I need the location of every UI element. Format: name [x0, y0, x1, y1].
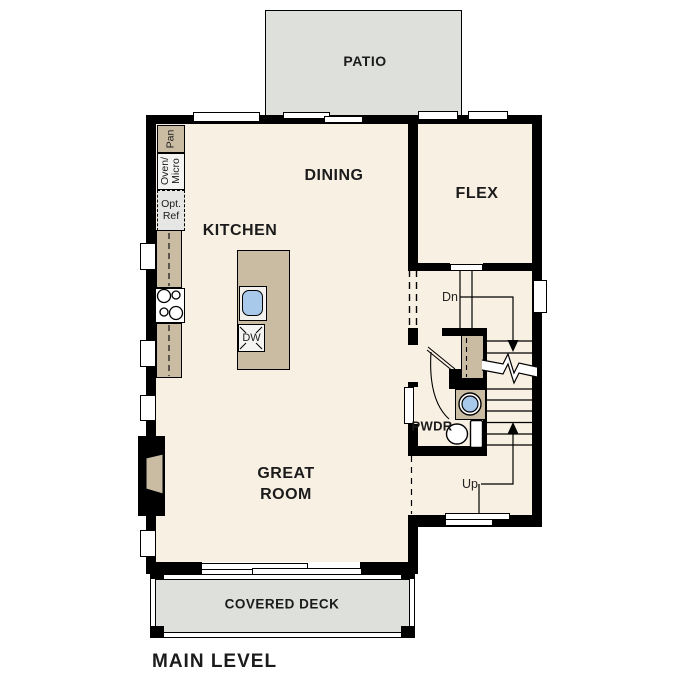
covered-deck-label: COVERED DECK — [225, 597, 340, 612]
pantry-label: Pan — [166, 130, 177, 149]
deck-post-tl — [150, 567, 164, 579]
wall-powder-bottom — [408, 446, 486, 456]
fireplace — [138, 436, 165, 516]
patio-door-panel-1 — [283, 112, 330, 119]
wall-right — [532, 115, 542, 527]
flex-label: FLEX — [456, 185, 499, 203]
window-right — [533, 280, 547, 313]
opt-ref-label: Opt. Ref — [161, 198, 181, 222]
island-sink — [242, 290, 263, 316]
dishwasher-label: DW — [242, 332, 260, 344]
powder-label: PWDR — [412, 419, 453, 434]
dining-label: DINING — [305, 167, 364, 185]
opt-ref-label-line2: Ref — [161, 210, 181, 222]
wall-flex-bottom-right — [483, 263, 542, 271]
window-left-3 — [140, 395, 156, 421]
oven-micro-label-line2: Micro — [171, 157, 182, 185]
window-left-2 — [140, 340, 156, 367]
wall-closet-top — [442, 328, 486, 336]
deck-post-tr — [401, 567, 415, 579]
powder-vanity — [455, 389, 486, 420]
patio-door-panel-2 — [324, 116, 363, 123]
deck-post-br — [401, 626, 415, 638]
great-room-label-line1: GREAT — [257, 463, 314, 484]
window-stair-bottom-2 — [445, 519, 493, 526]
oven-micro-label: Oven/ Micro — [160, 157, 182, 185]
floorplan-main-level: PATIO DINING KITCHEN FLEX GREAT ROOM PWD… — [0, 0, 687, 687]
wall-flex-bottom-left — [408, 263, 450, 271]
stair-closet — [461, 336, 483, 378]
stairs-down-label: Dn — [442, 290, 458, 304]
wall-interior-lower-jog — [408, 515, 418, 574]
cooktop — [155, 288, 185, 323]
wall-interior-upper — [408, 124, 418, 270]
window-flex-2 — [468, 111, 508, 120]
patio-label: PATIO — [343, 53, 386, 69]
window-left-4 — [140, 530, 156, 557]
counter-upper — [156, 230, 182, 288]
stairs-up-label: Up — [462, 477, 478, 491]
opt-ref-label-line1: Opt. — [161, 198, 181, 210]
counter-lower — [156, 323, 182, 378]
deck-post-bl — [150, 626, 164, 638]
wall-closet-bottom — [449, 378, 486, 389]
wall-interior-mid1 — [408, 328, 418, 345]
great-room-label: GREAT ROOM — [257, 463, 314, 505]
stair-railing — [450, 264, 483, 271]
window-left-1 — [140, 243, 156, 270]
great-room-label-line2: ROOM — [257, 484, 314, 505]
window-flex-1 — [418, 111, 458, 120]
kitchen-label: KITCHEN — [203, 222, 278, 240]
main-level-title: MAIN LEVEL — [152, 651, 277, 673]
window-dining — [193, 112, 260, 122]
